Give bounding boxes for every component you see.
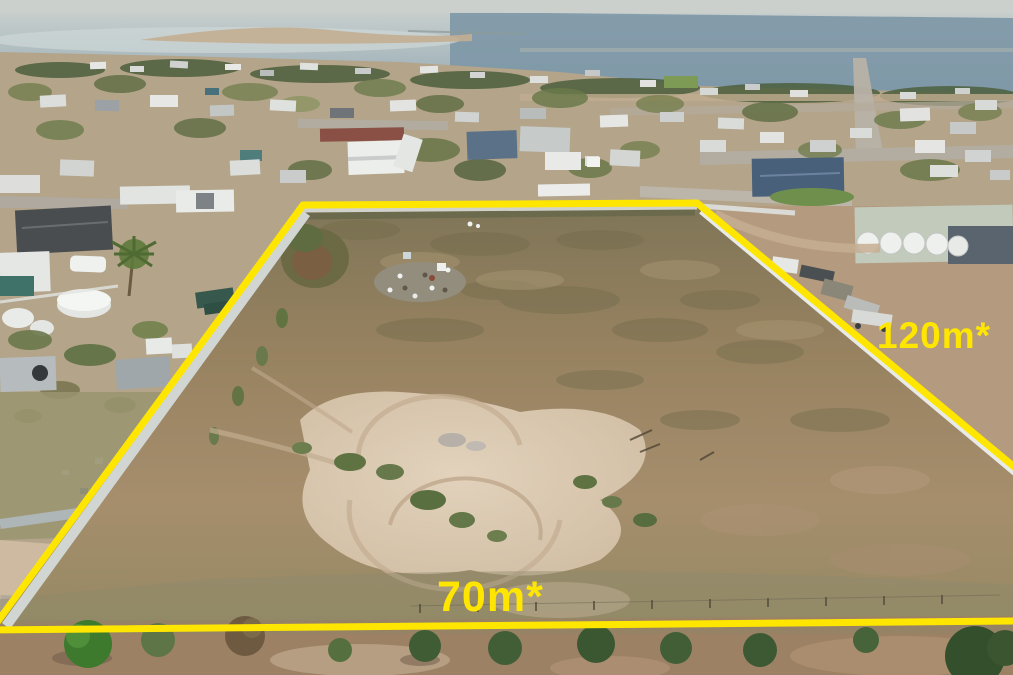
dimension-label-right: 120m* (877, 317, 991, 354)
white-van (587, 157, 600, 167)
park-lawn (664, 76, 698, 88)
teal-roof (0, 276, 34, 296)
shed-door (196, 193, 214, 209)
dark-roof-house (15, 206, 113, 255)
maroon-roof (320, 127, 404, 141)
grey-iron-shed (115, 356, 171, 390)
lawn (770, 188, 854, 206)
round-tank-small (2, 308, 34, 328)
puddle (438, 433, 466, 447)
dimension-label-bottom: 70m* (437, 576, 544, 619)
black-drum (32, 365, 48, 381)
caravan (70, 255, 107, 272)
slate-roof-house (467, 130, 518, 160)
aerial-listing-photo: 120m* 70m* (0, 0, 1013, 675)
white-bucket (437, 263, 446, 271)
